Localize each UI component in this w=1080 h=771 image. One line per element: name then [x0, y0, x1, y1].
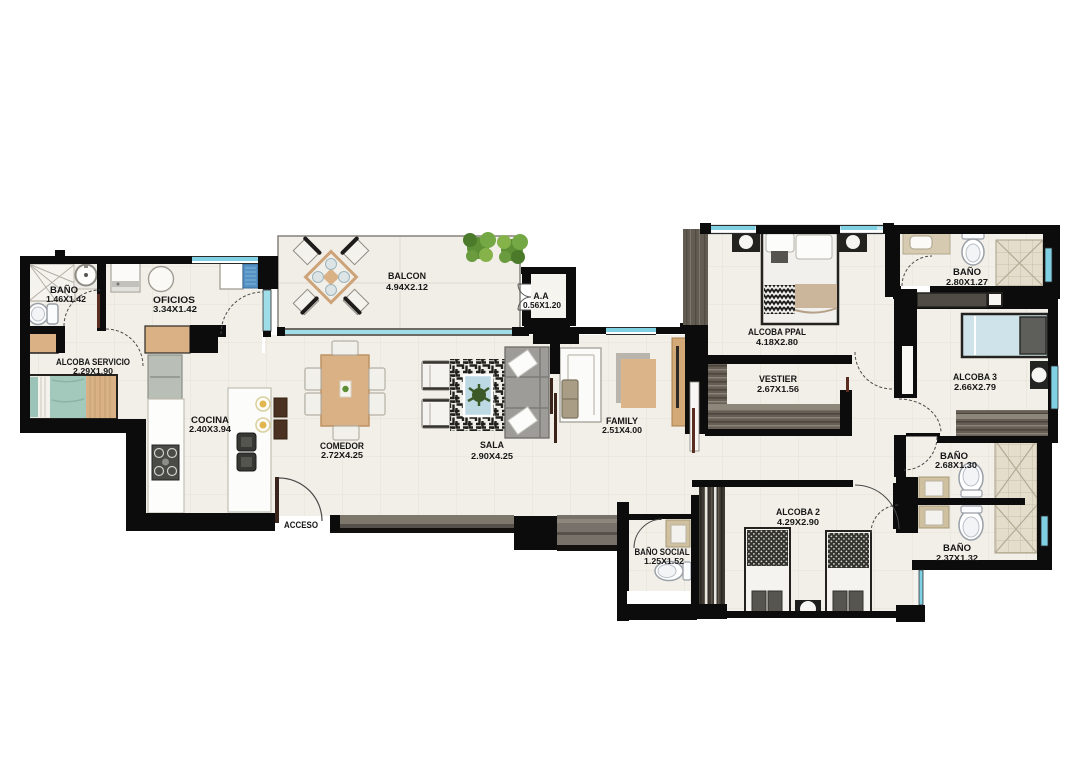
svg-text:1.25X1.52: 1.25X1.52: [644, 556, 684, 566]
svg-text:2.51X4.00: 2.51X4.00: [602, 425, 642, 435]
svg-text:1.46X1.42: 1.46X1.42: [46, 294, 86, 304]
svg-text:ALCOBA 3: ALCOBA 3: [953, 372, 997, 382]
svg-text:4.18X2.80: 4.18X2.80: [756, 337, 798, 347]
svg-text:VESTIER: VESTIER: [759, 374, 798, 384]
svg-text:BAÑO: BAÑO: [953, 267, 981, 277]
svg-text:2.90X4.25: 2.90X4.25: [471, 451, 513, 461]
svg-text:2.68X1.30: 2.68X1.30: [935, 460, 977, 470]
svg-text:2.37X1.32: 2.37X1.32: [936, 553, 978, 563]
svg-text:2.40X3.94: 2.40X3.94: [189, 424, 231, 434]
svg-text:3.34X1.42: 3.34X1.42: [153, 304, 197, 314]
svg-text:BALCON: BALCON: [388, 271, 426, 281]
svg-text:2.72X4.25: 2.72X4.25: [321, 450, 363, 460]
svg-text:ALCOBA 2: ALCOBA 2: [776, 507, 820, 517]
svg-text:ACCESO: ACCESO: [284, 520, 318, 530]
svg-text:SALA: SALA: [480, 440, 505, 450]
svg-text:4.94X2.12: 4.94X2.12: [386, 282, 428, 292]
svg-text:2.67X1.56: 2.67X1.56: [757, 384, 799, 394]
svg-text:2.29X1.90: 2.29X1.90: [73, 366, 113, 376]
svg-text:2.80X1.27: 2.80X1.27: [946, 277, 988, 287]
svg-text:BAÑO: BAÑO: [943, 543, 971, 553]
svg-text:4.29X2.90: 4.29X2.90: [777, 517, 819, 527]
svg-text:2.66X2.79: 2.66X2.79: [954, 382, 996, 392]
svg-text:ALCOBA PPAL: ALCOBA PPAL: [748, 327, 807, 337]
svg-text:0.56X1.20: 0.56X1.20: [523, 300, 561, 310]
